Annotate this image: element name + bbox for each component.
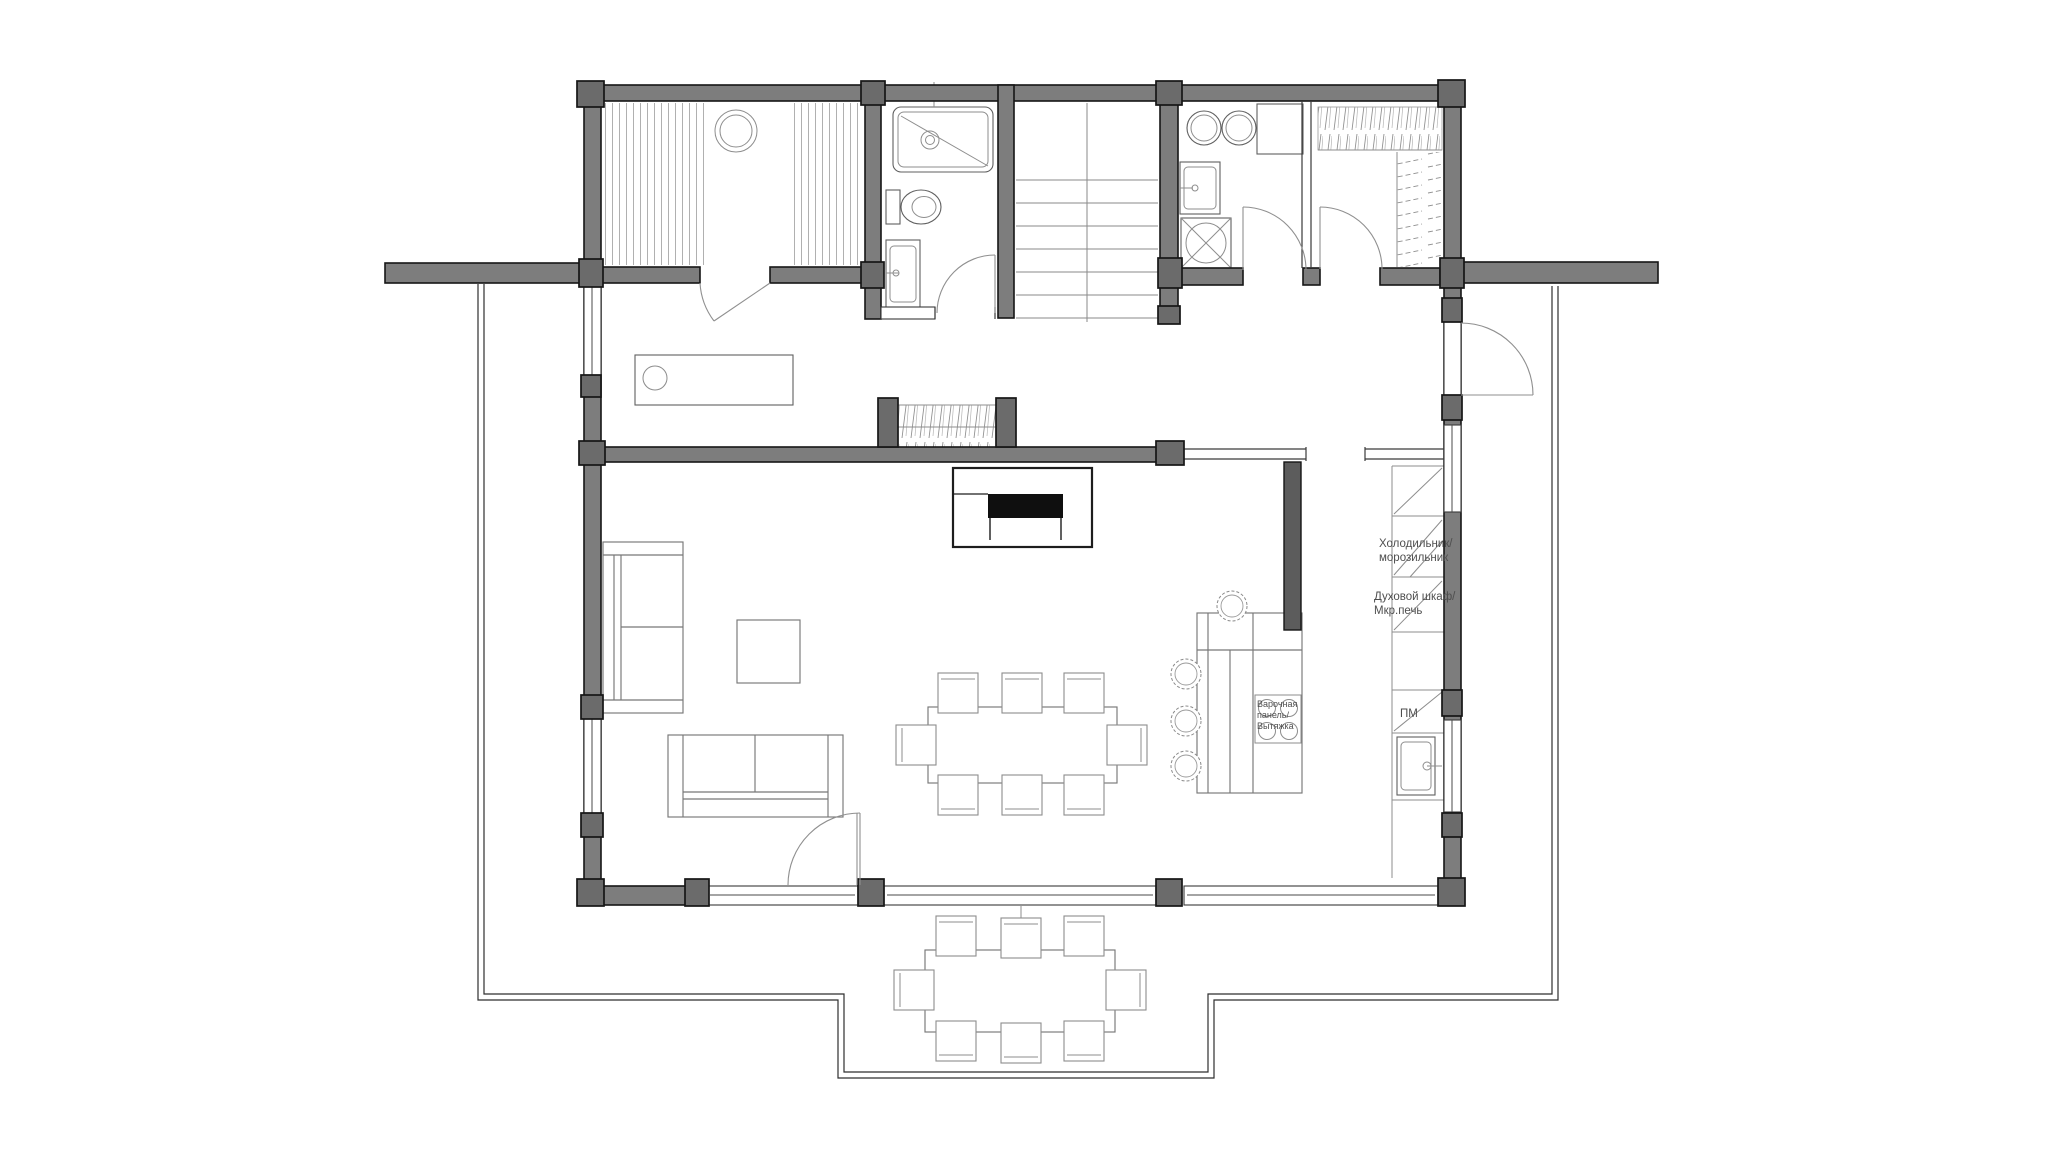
sauna-room: [604, 103, 863, 283]
dining-table: [928, 707, 1117, 783]
oven-label-line2: Мкр.печь: [1374, 605, 1422, 617]
staircase: [1016, 103, 1158, 322]
kitchen-partition: [1284, 462, 1301, 630]
shower-tray: [893, 107, 993, 172]
desk: [635, 355, 793, 405]
bar-stools: [1171, 591, 1247, 781]
bathroom-sink: [886, 240, 920, 308]
kitchen-counter: [1392, 466, 1444, 878]
oven-label-line1: Духовой шкаф/: [1374, 591, 1456, 603]
bathroom: [886, 82, 993, 308]
dishwasher-label: ПМ: [1400, 708, 1418, 720]
wardrobe-room: [1318, 107, 1442, 267]
fireplace: [953, 468, 1092, 547]
sofa-horizontal: [668, 735, 843, 817]
dryer: [1222, 111, 1256, 145]
terrace-table: [925, 950, 1115, 1032]
terrace-dining-set: [894, 916, 1146, 1063]
toilet-tank: [886, 190, 900, 224]
fridge-label-line2: морозильник: [1379, 552, 1449, 564]
dining-set: [896, 673, 1147, 815]
cooktop-label-line2: панель/: [1257, 710, 1289, 720]
cooktop-label-line1: Варочная: [1257, 699, 1297, 709]
washer: [1187, 111, 1221, 145]
floor-plan-canvas: Холодильник/ морозильник Духовой шкаф/ М…: [0, 0, 2048, 1152]
fridge-label-line1: Холодильник/: [1379, 538, 1453, 550]
sofa-vertical: [603, 542, 683, 713]
coffee-table: [737, 620, 800, 683]
cooktop-label-line3: Вытяжка: [1257, 721, 1294, 731]
sauna-stove: [715, 110, 757, 152]
hall-desk: [635, 355, 793, 405]
utility-counter: [1257, 104, 1303, 154]
utility-room: [1180, 104, 1303, 268]
toilet-bowl: [901, 190, 941, 224]
coat-closet: [898, 405, 997, 447]
